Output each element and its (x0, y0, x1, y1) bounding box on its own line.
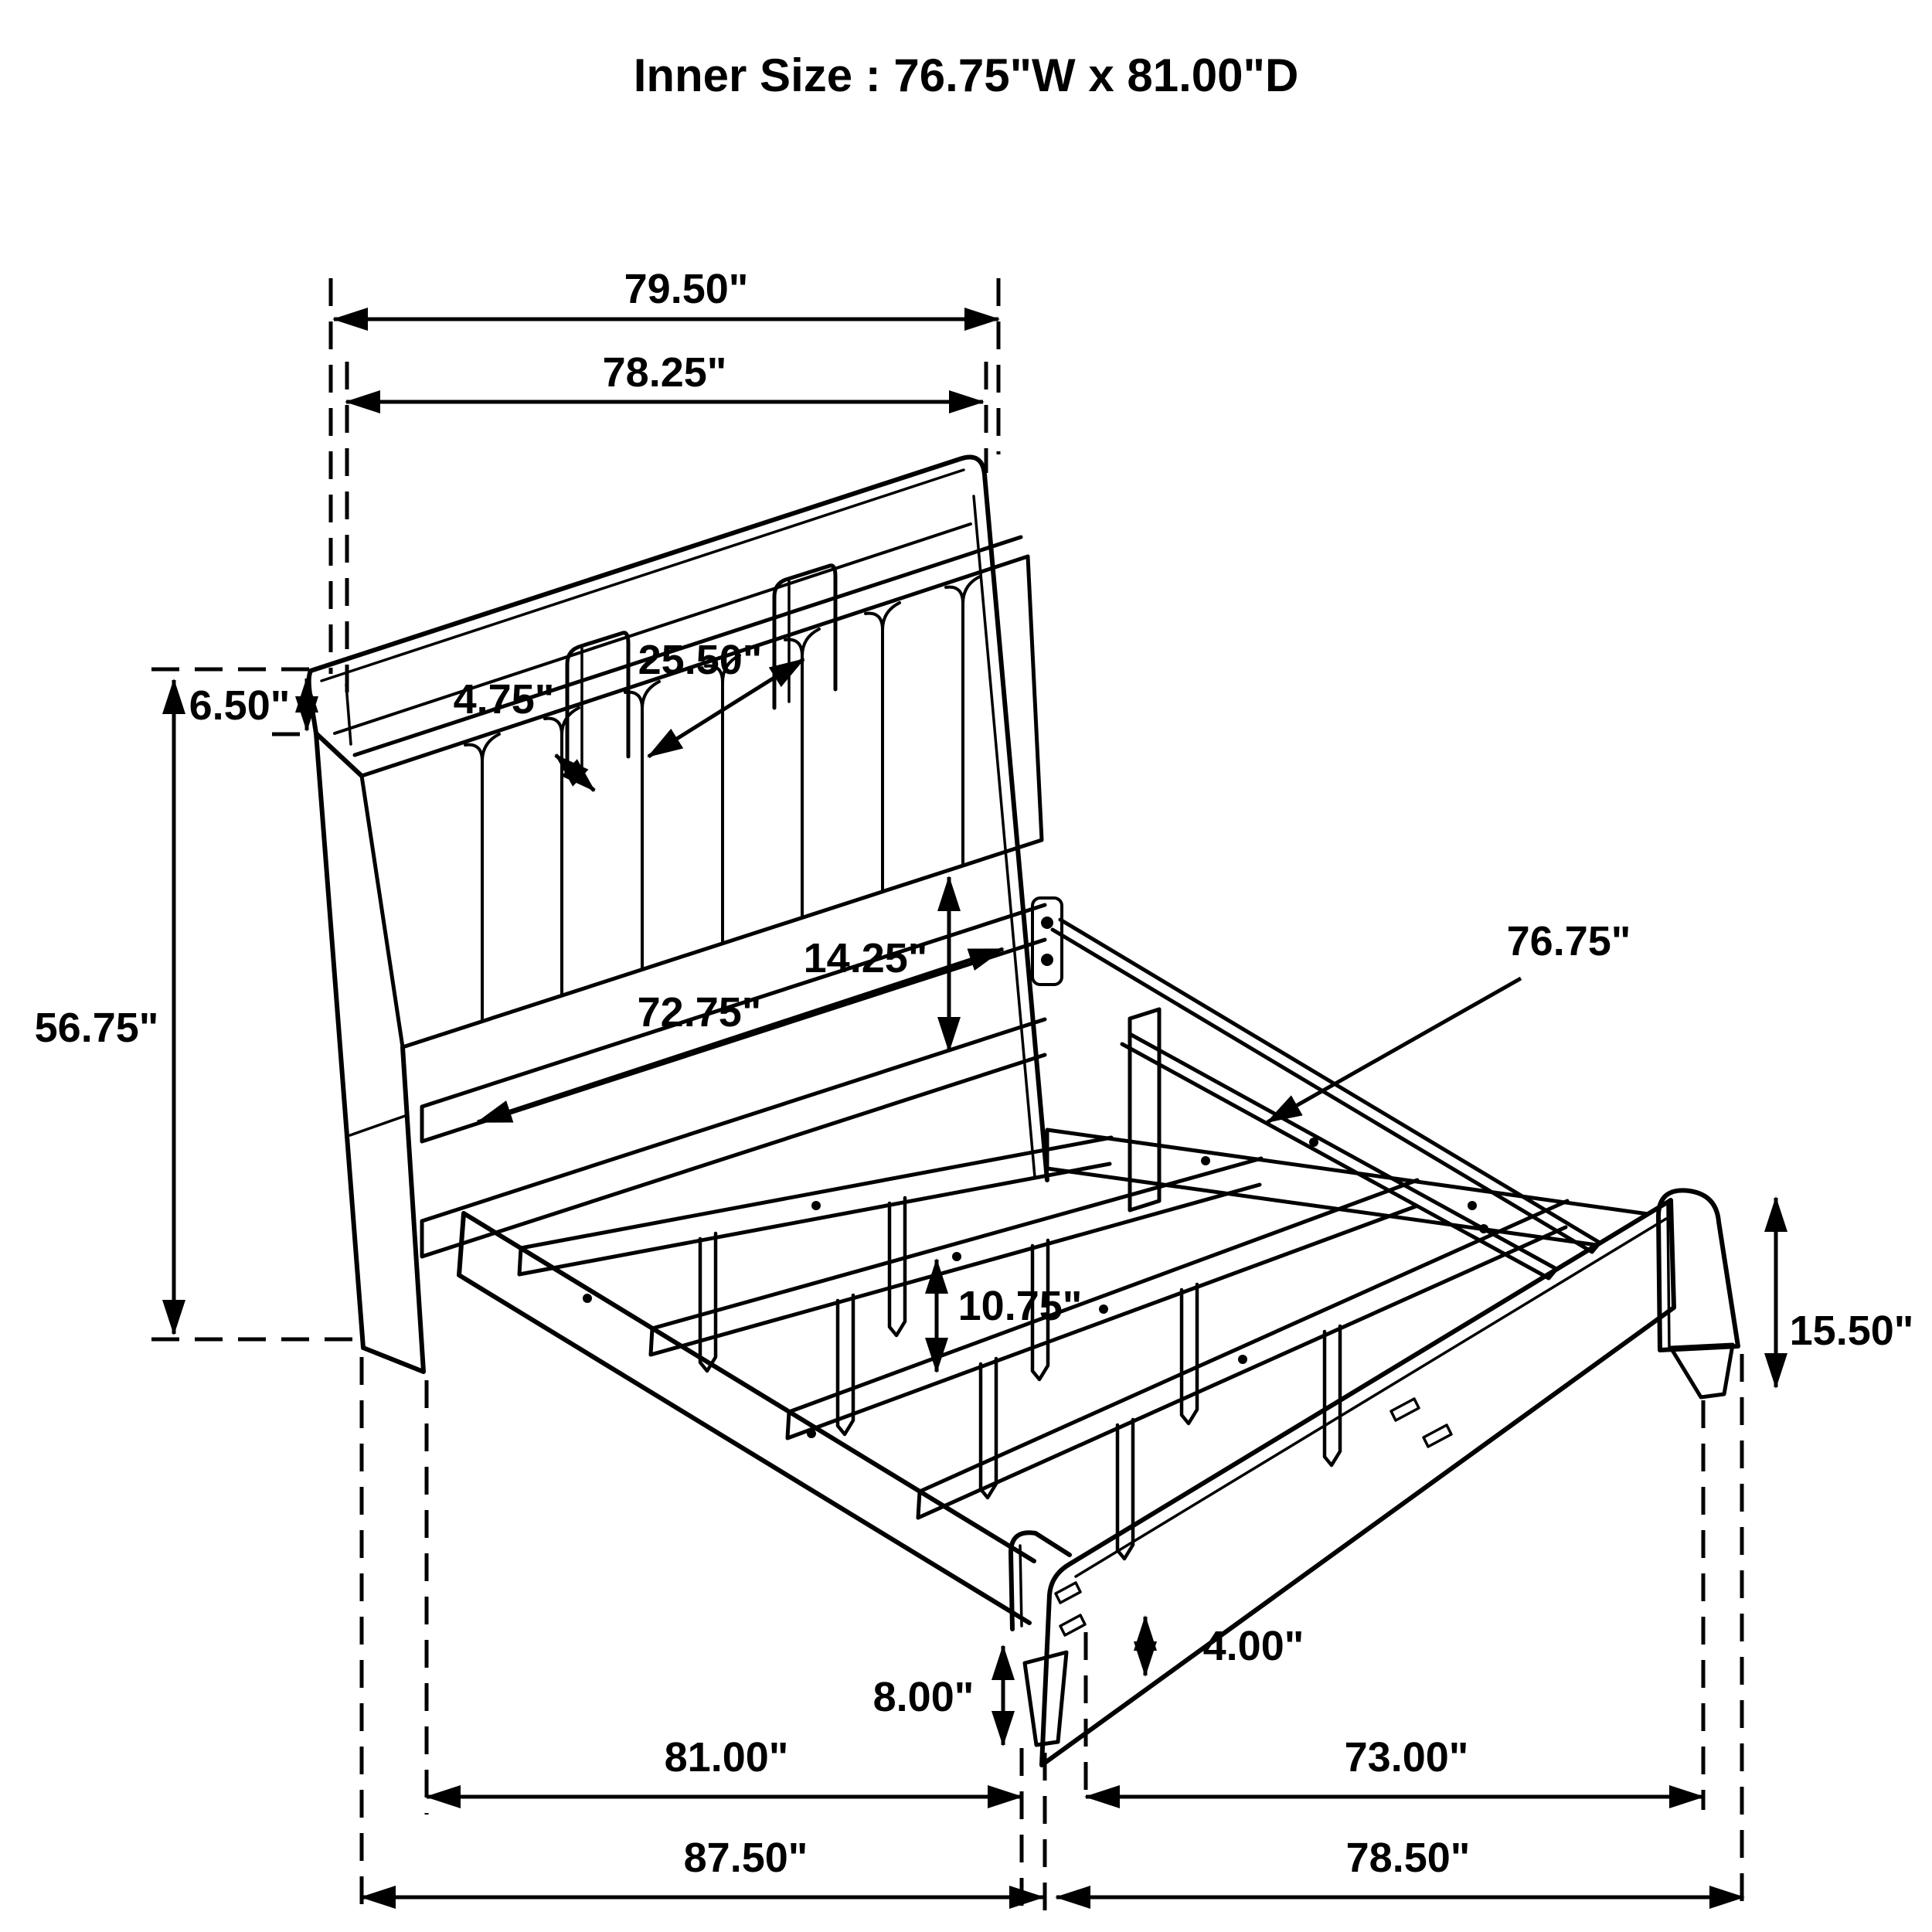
dimension-arrows (174, 319, 1776, 1897)
bracket-hole-bottom (1041, 954, 1053, 966)
center-rail-b (1053, 920, 1600, 1252)
label-footboard-height: 15.50" (1790, 1308, 1914, 1354)
leader-center-rail-length (1267, 978, 1521, 1122)
bracket-hole-top (1041, 917, 1053, 929)
left-side-rail (459, 1213, 1034, 1623)
footboard-face-slots (1056, 1399, 1451, 1635)
headboard-lower-rail-2 (422, 1019, 1045, 1257)
label-headboard-outer-width: 79.50" (624, 266, 749, 312)
footboard-left-cap-inner (1020, 1546, 1022, 1626)
label-footboard-leg-height: 4.00" (1203, 1623, 1304, 1669)
label-shelf-height: 6.50" (189, 682, 291, 729)
shelf-left-end-cap-inner (346, 685, 351, 744)
footboard (1011, 1190, 1738, 1765)
bed-dimension-diagram: Inner Size : 76.75"W x 81.00"D (0, 0, 1932, 1932)
label-overall-length: 87.50" (684, 1835, 808, 1881)
extension-line-set (151, 278, 1742, 1918)
label-headboard-inner-width: 72.75" (638, 989, 762, 1036)
label-frame-clearance-height: 8.00" (873, 1674, 975, 1720)
right-side-rail (1047, 1130, 1648, 1245)
center-rail-a (1122, 1034, 1556, 1278)
label-shelf-divider-gap: 4.75" (454, 676, 555, 723)
extension-lines (151, 278, 1742, 1918)
label-inner-platform-length: 81.00" (665, 1734, 789, 1781)
label-headboard-width: 78.25" (603, 349, 727, 396)
footboard-right-leg (1671, 1345, 1733, 1397)
diagram-title: Inner Size : 76.75"W x 81.00"D (634, 49, 1299, 101)
label-support-leg-height: 10.75" (958, 1283, 1083, 1329)
headboard-left-stile-joint (350, 1116, 405, 1135)
label-headboard-height: 56.75" (35, 1005, 159, 1051)
label-panel-to-rail-height: 14.25" (804, 935, 928, 981)
shelf-floor-back-edge (335, 524, 971, 733)
label-shelf-opening-width: 25.50" (638, 637, 763, 683)
footboard-right-cap-inner (1668, 1206, 1669, 1349)
label-side-rail-length: 73.00" (1345, 1734, 1469, 1781)
label-center-rail-length: 76.75" (1507, 918, 1631, 964)
label-footboard-section-length: 78.50" (1346, 1835, 1471, 1881)
